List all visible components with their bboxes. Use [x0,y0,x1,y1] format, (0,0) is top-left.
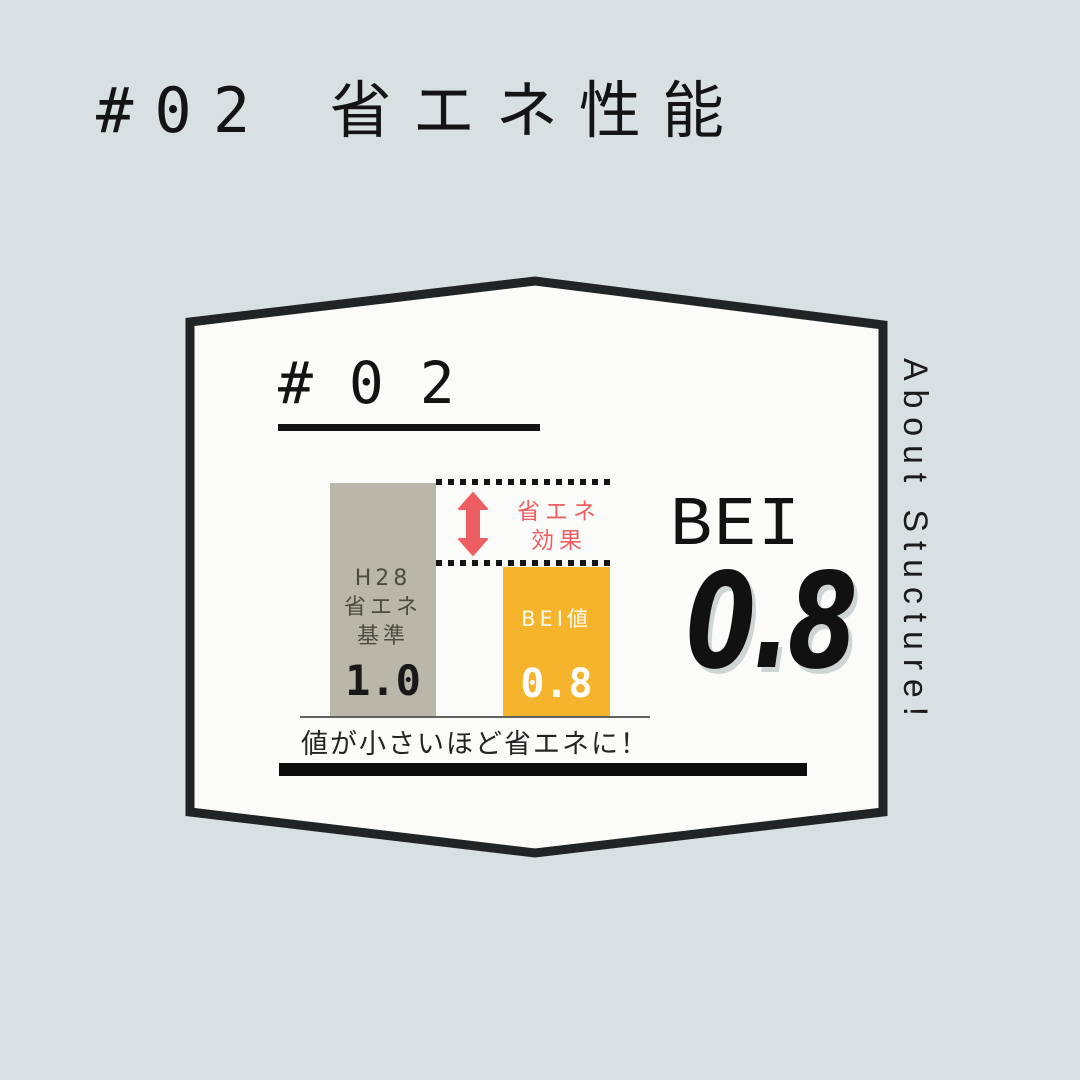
dotted-line-standard-level [436,479,613,485]
card-number-underline [278,424,540,431]
annotation-line2: 効果 [494,527,624,556]
bar-h28-label: H28 省エネ 基準 [344,564,422,651]
energy-saving-effect-annotation: 省エネ 効果 [494,498,624,556]
chart-caption: 値が小さいほど省エネに！ [295,722,655,761]
side-label-vertical: About Stucture! [895,358,934,725]
bar-bei-label: BEI値 [521,606,592,634]
bar-h28-value: 1.0 [345,660,421,702]
updown-arrow-icon [458,492,488,556]
annotation-line1: 省エネ [494,498,624,527]
bar-bei-value: 0.8 [520,664,592,704]
bar-h28-label-line3: 基準 [344,622,422,651]
chart-baseline [300,716,650,718]
infographic-canvas: #02 省エネ性能 #02 H28 省エネ 基準 1.0 BEI値 0.8 省エ… [0,0,1080,1080]
bar-h28-label-line2: 省エネ [344,593,422,622]
bar-h28-label-line1: H28 [344,564,422,593]
result-value: 0.8 [686,556,855,688]
card-number: #02 [278,352,491,416]
bar-bei: BEI値 0.8 [503,567,610,718]
bottom-rule [279,763,807,776]
dotted-line-bei-level [436,560,613,566]
bar-h28-standard: H28 省エネ 基準 1.0 [330,483,436,718]
